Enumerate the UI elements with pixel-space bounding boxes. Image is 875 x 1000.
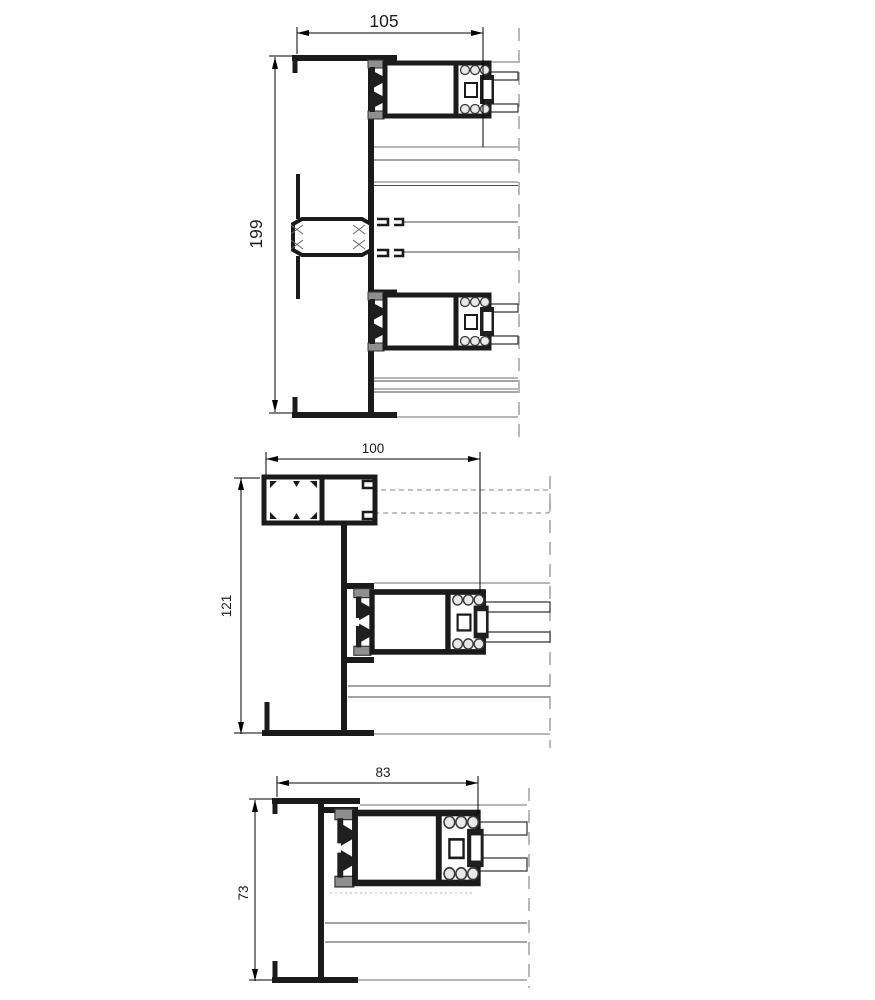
dimension-height-121: 121 <box>219 478 262 734</box>
dim-label-83: 83 <box>375 765 390 780</box>
top-section-center-connector <box>291 219 403 256</box>
glass-pane <box>489 336 518 344</box>
top-section-lower-sash <box>368 292 518 351</box>
dim-label-199: 199 <box>246 219 266 248</box>
profile-sections-drawing: 105 199 <box>0 0 875 1000</box>
glass-pane <box>483 602 550 612</box>
dim-label-73: 73 <box>236 885 251 900</box>
middle-section-sash <box>354 589 550 656</box>
glass-pane <box>478 822 527 835</box>
glass-pane <box>478 858 527 871</box>
top-section: 105 199 <box>246 11 519 442</box>
dim-label-105: 105 <box>369 11 398 31</box>
dimension-width-83: 83 <box>277 765 478 813</box>
bottom-section-sash <box>335 809 527 887</box>
technical-drawing-page: 105 199 <box>0 0 875 1000</box>
dim-label-100: 100 <box>362 441 385 456</box>
bottom-section: 83 73 <box>236 765 529 988</box>
clip-hooks-upper <box>377 219 403 225</box>
middle-section: 100 121 <box>219 441 550 748</box>
top-section-upper-sash <box>368 60 518 119</box>
dimension-height-73: 73 <box>236 799 272 981</box>
glass-pane <box>489 104 518 112</box>
glass-pane <box>483 632 550 642</box>
bottom-section-frame-profile <box>272 798 360 983</box>
clip-hooks-lower <box>377 250 403 256</box>
dim-label-121: 121 <box>219 595 234 618</box>
dimension-height-199: 199 <box>246 56 292 413</box>
